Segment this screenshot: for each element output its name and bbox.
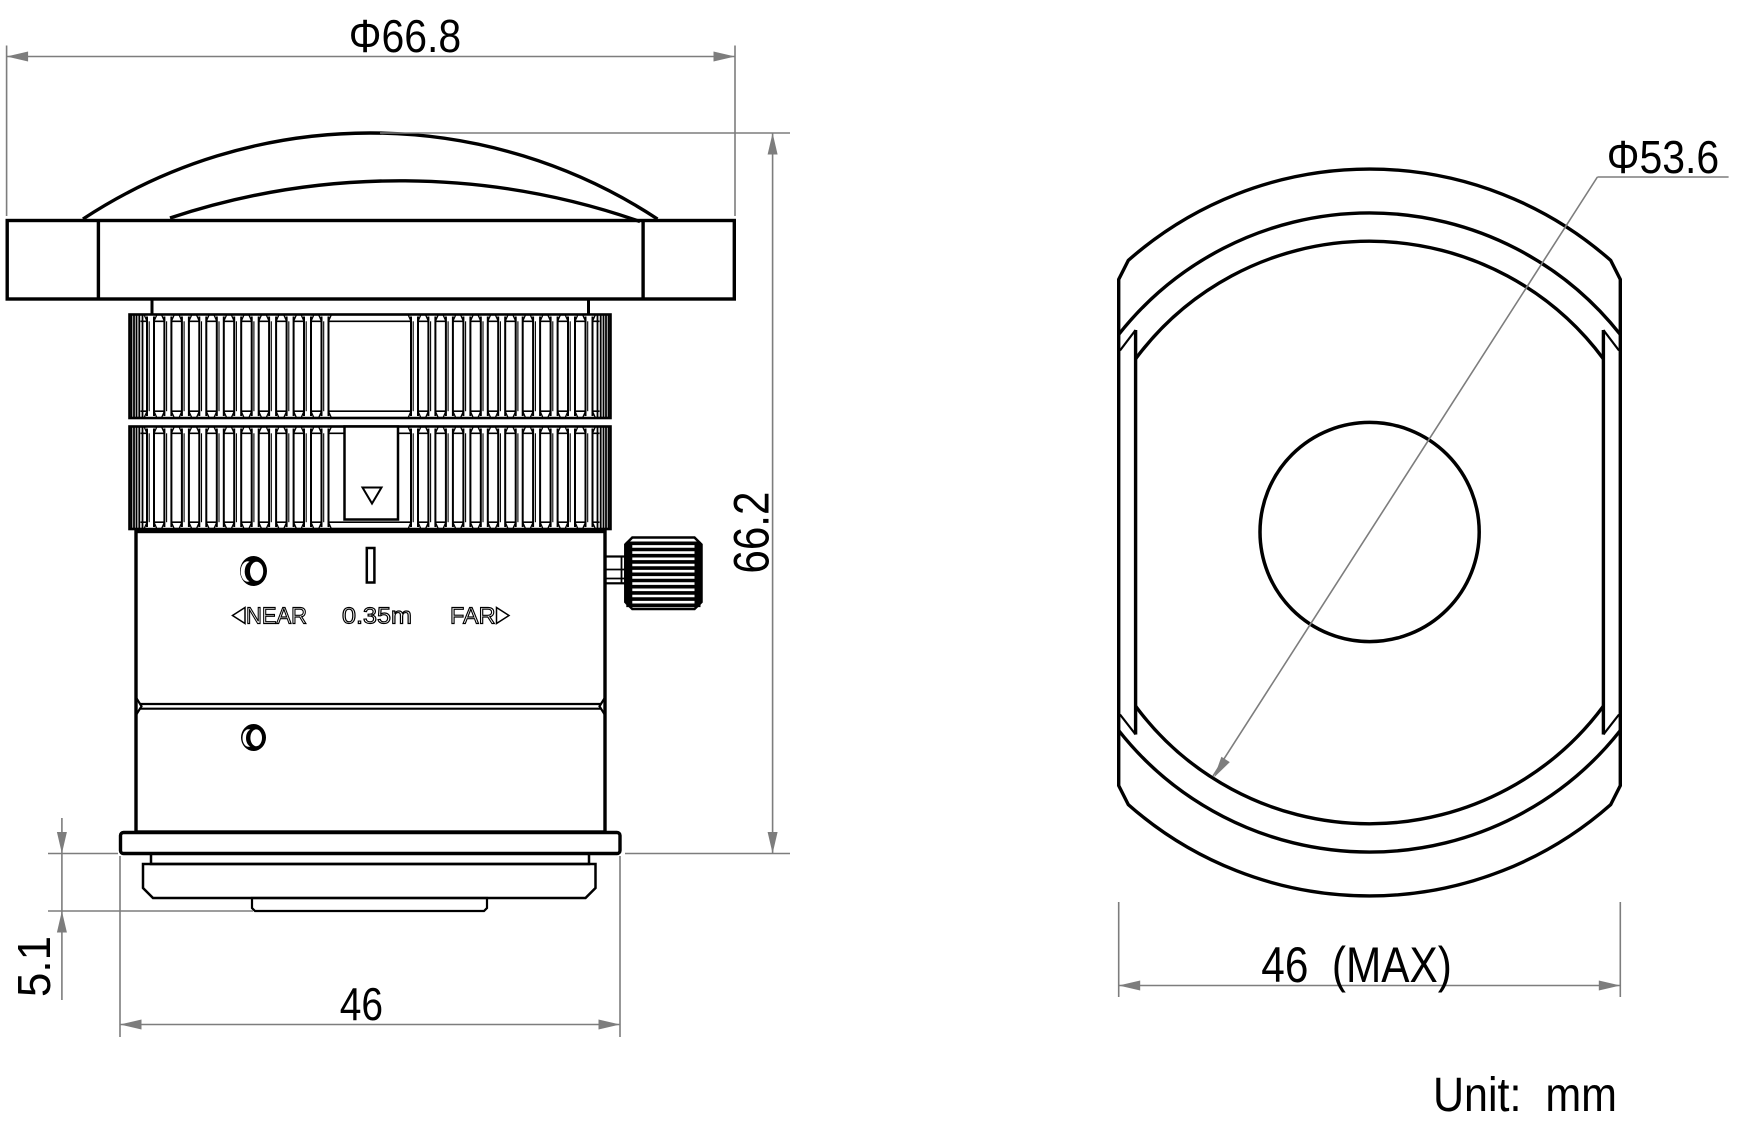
svg-text:46 (MAX): 46 (MAX) [1261,937,1452,993]
svg-text:NEAR: NEAR [246,603,307,629]
svg-text:Unit: mm: Unit: mm [1433,1069,1617,1122]
svg-text:FAR: FAR [450,603,496,629]
svg-text:46: 46 [340,978,383,1030]
svg-text:66.2: 66.2 [724,492,780,574]
svg-text:5.1: 5.1 [8,936,60,997]
svg-text:Φ53.6: Φ53.6 [1607,131,1719,183]
svg-text:Φ66.8: Φ66.8 [349,10,461,62]
svg-text:0.35m: 0.35m [342,603,412,629]
